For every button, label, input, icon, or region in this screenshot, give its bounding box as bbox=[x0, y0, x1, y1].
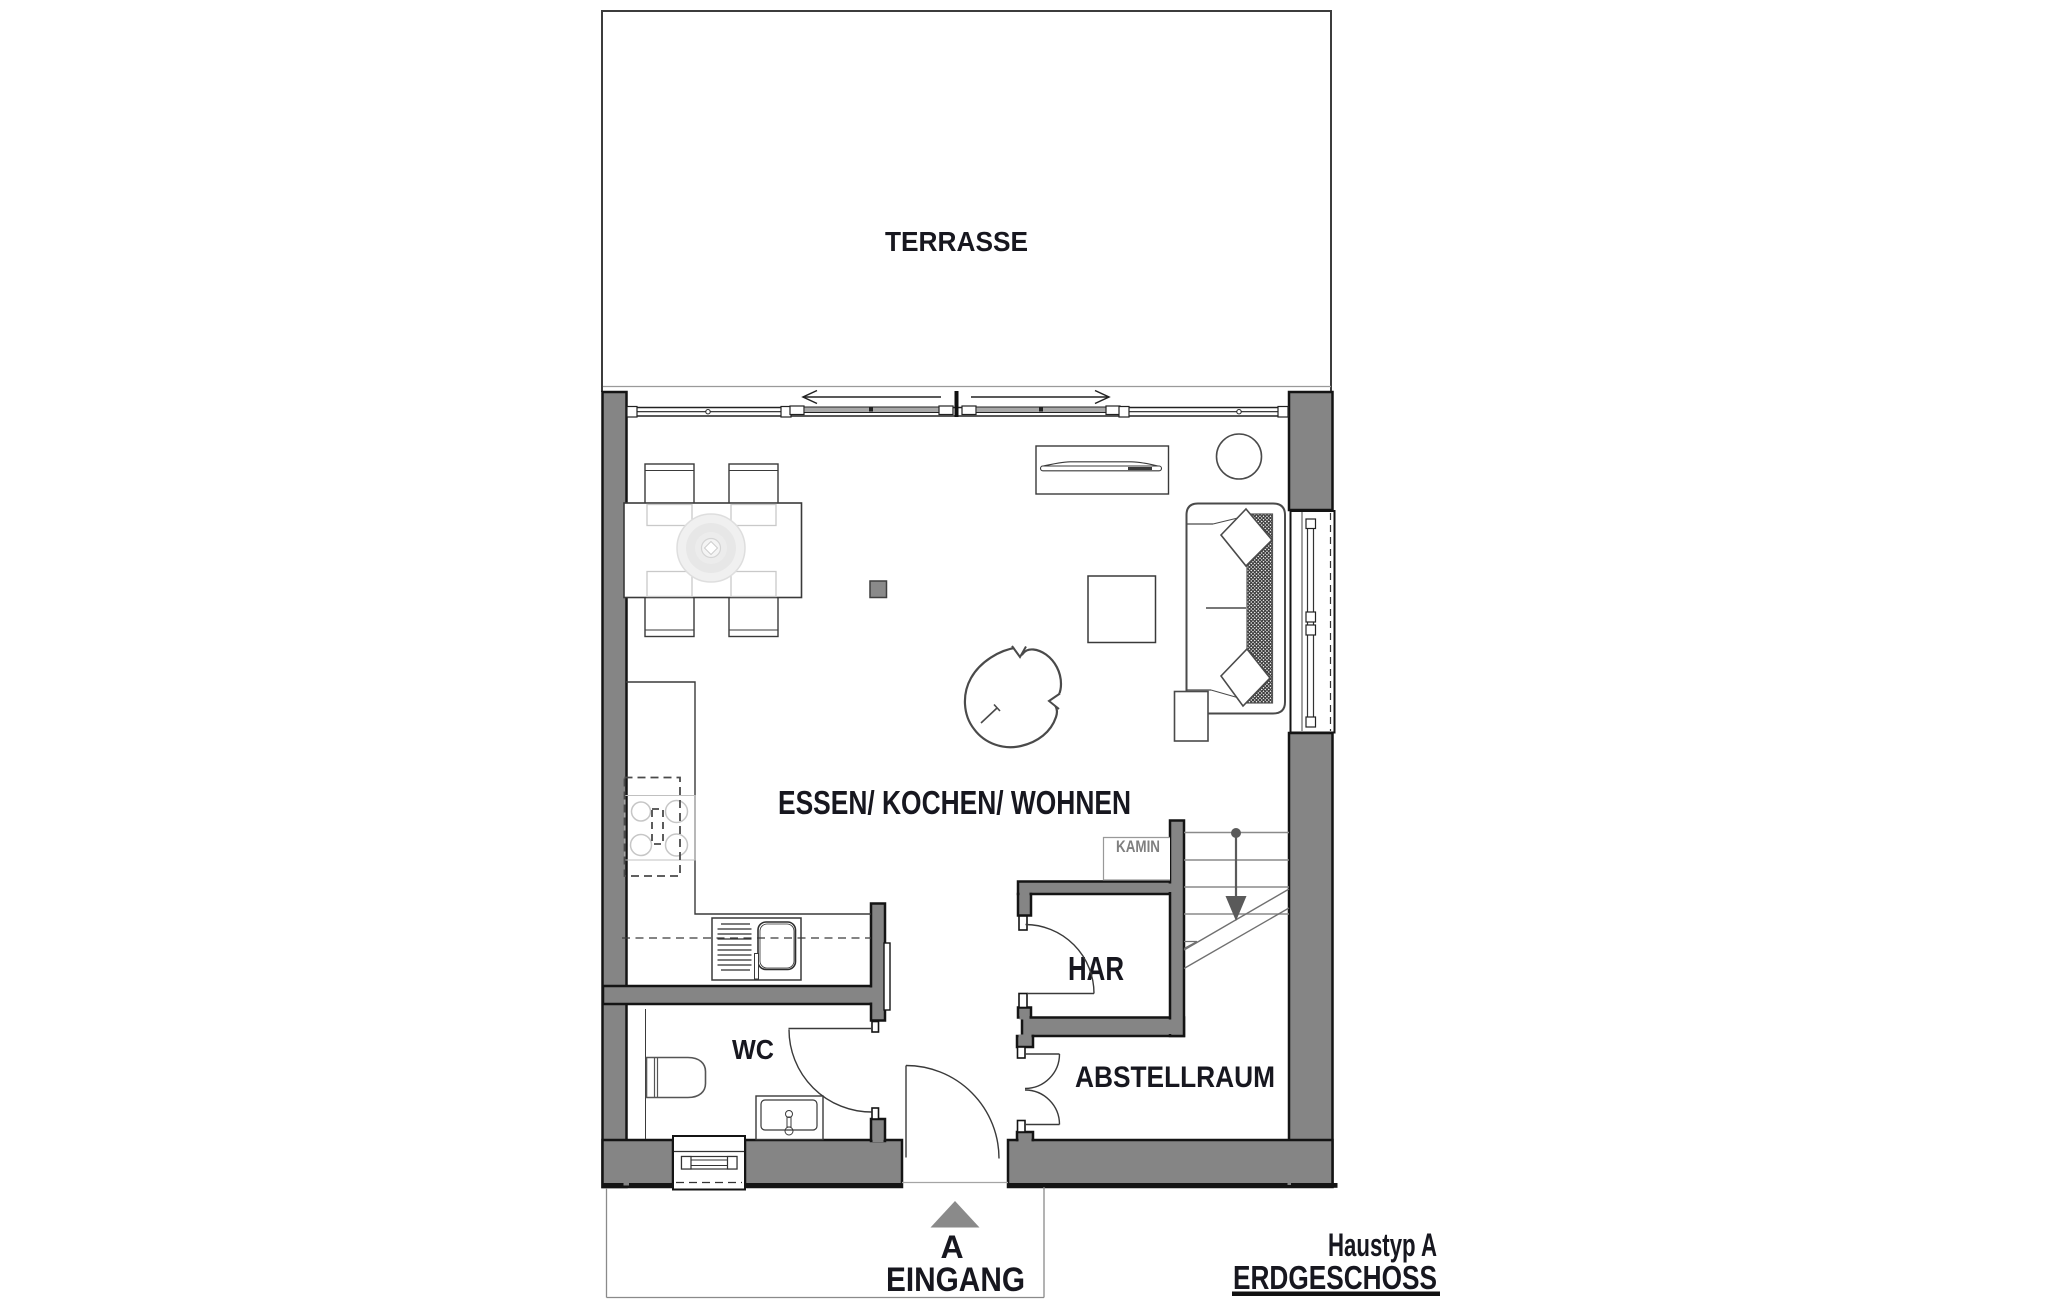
svg-text:Haustyp A: Haustyp A bbox=[1328, 1227, 1437, 1263]
svg-text:WC: WC bbox=[732, 1034, 774, 1065]
svg-text:ESSEN/ KOCHEN/ WOHNEN: ESSEN/ KOCHEN/ WOHNEN bbox=[778, 785, 1131, 822]
svg-text:KAMIN: KAMIN bbox=[1116, 838, 1160, 856]
svg-text:HAR: HAR bbox=[1068, 951, 1124, 988]
svg-text:ABSTELLRAUM: ABSTELLRAUM bbox=[1075, 1061, 1275, 1094]
svg-text:ERDGESCHOSS: ERDGESCHOSS bbox=[1233, 1260, 1437, 1297]
svg-text:A: A bbox=[941, 1229, 964, 1265]
svg-text:TERRASSE: TERRASSE bbox=[885, 226, 1028, 257]
svg-text:EINGANG: EINGANG bbox=[886, 1261, 1025, 1299]
